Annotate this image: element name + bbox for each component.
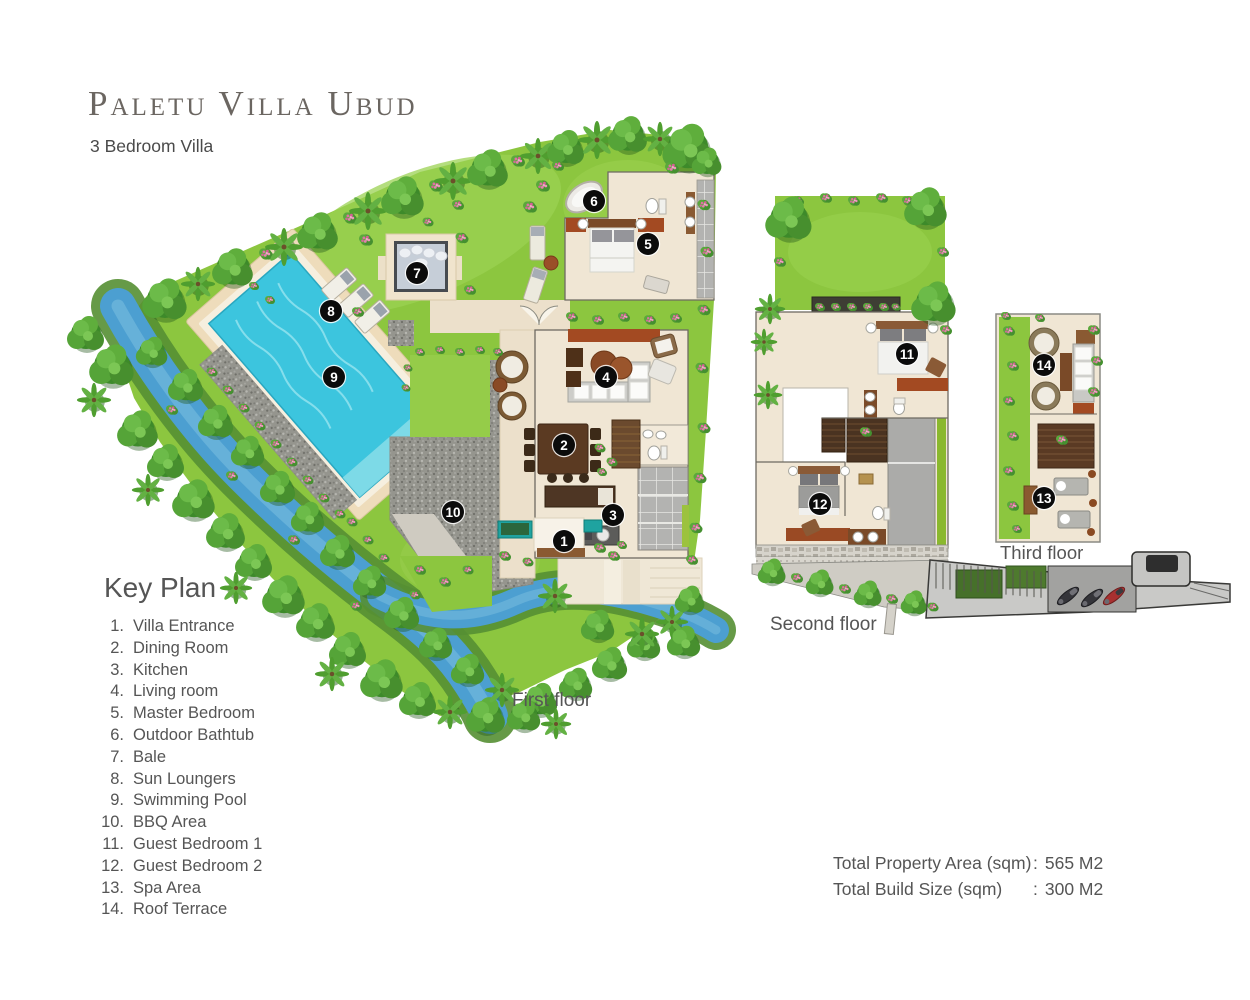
key-plan-item: 12.Guest Bedroom 2 xyxy=(92,857,262,879)
palm-tree-icon xyxy=(181,267,215,301)
key-plan-item-number: 7. xyxy=(92,748,124,767)
key-plan-item-label: Kitchen xyxy=(133,661,188,680)
key-plan-item-label: Roof Terrace xyxy=(133,900,227,919)
key-plan-item-label: Spa Area xyxy=(133,879,201,898)
key-plan-item-label: Master Bedroom xyxy=(133,704,255,723)
palm-tree-icon xyxy=(751,329,778,356)
totals: Total Property Area (sqm):565 M2Total Bu… xyxy=(833,850,1103,902)
key-plan-item: 14.Roof Terrace xyxy=(92,900,262,922)
total-label: Total Property Area (sqm) xyxy=(833,850,1033,876)
palm-tree-icon xyxy=(755,294,785,324)
total-row: Total Property Area (sqm):565 M2 xyxy=(833,850,1103,876)
key-plan-item-number: 5. xyxy=(92,704,124,723)
key-plan-item-label: Swimming Pool xyxy=(133,791,247,810)
key-plan-item-label: Living room xyxy=(133,682,218,701)
palm-tree-icon xyxy=(434,162,472,200)
key-plan-item: 3.Kitchen xyxy=(92,661,262,683)
key-plan-item-number: 1. xyxy=(92,617,124,636)
key-plan-item-number: 12. xyxy=(92,857,124,876)
key-plan-item: 4.Living room xyxy=(92,682,262,704)
key-plan-item: 10.BBQ Area xyxy=(92,813,262,835)
key-plan-item: 2.Dining Room xyxy=(92,639,262,661)
key-plan-item-label: Villa Entrance xyxy=(133,617,235,636)
key-plan-item-number: 13. xyxy=(92,879,124,898)
page-subtitle: 3 Bedroom Villa xyxy=(90,136,213,157)
palm-tree-icon xyxy=(541,709,571,739)
key-plan-item-label: Guest Bedroom 2 xyxy=(133,857,262,876)
second-floor-label: Second floor xyxy=(770,614,877,636)
palm-tree-icon xyxy=(754,381,783,410)
key-plan-item-number: 10. xyxy=(92,813,124,832)
palm-tree-icon xyxy=(77,383,111,417)
key-plan-item: 7.Bale xyxy=(92,748,262,770)
palm-tree-icon xyxy=(132,474,164,506)
stairwell xyxy=(1038,424,1094,468)
key-plan-item-number: 2. xyxy=(92,639,124,658)
key-plan-item-number: 8. xyxy=(92,770,124,789)
third-floor-label: Third floor xyxy=(1000,542,1083,564)
key-plan-heading: Key Plan xyxy=(104,572,216,604)
key-plan-item-number: 14. xyxy=(92,900,124,919)
key-plan-item-label: BBQ Area xyxy=(133,813,206,832)
key-plan-item-number: 6. xyxy=(92,726,124,745)
tree-icon xyxy=(904,187,947,230)
palm-tree-icon xyxy=(265,228,303,266)
total-label: Total Build Size (sqm) xyxy=(833,876,1033,902)
key-plan-item-label: Sun Loungers xyxy=(133,770,236,789)
total-row: Total Build Size (sqm):300 M2 xyxy=(833,876,1103,902)
key-plan-item: 11.Guest Bedroom 1 xyxy=(92,835,262,857)
toilet xyxy=(646,199,658,214)
palm-tree-icon xyxy=(625,617,659,651)
bale-pavilion xyxy=(378,234,462,300)
key-plan-item: 6.Outdoor Bathtub xyxy=(92,726,262,748)
total-sep: : xyxy=(1033,853,1038,873)
key-plan-list: 1.Villa Entrance2.Dining Room3.Kitchen4.… xyxy=(92,617,262,922)
palm-tree-icon xyxy=(433,695,467,729)
page-title: Paletu Villa Ubud xyxy=(88,84,418,124)
key-plan-item-label: Dining Room xyxy=(133,639,228,658)
tree-icon xyxy=(608,116,647,155)
total-value: 300 M2 xyxy=(1045,879,1103,899)
key-plan-item: 13.Spa Area xyxy=(92,879,262,901)
palm-tree-icon xyxy=(538,579,572,613)
palm-tree-icon xyxy=(220,572,252,604)
palm-tree-icon xyxy=(315,657,349,691)
key-plan-item: 5.Master Bedroom xyxy=(92,704,262,726)
key-plan-item: 8.Sun Loungers xyxy=(92,770,262,792)
total-value: 565 M2 xyxy=(1045,853,1103,873)
floor-plan-page: Paletu Villa Ubud 3 Bedroom Villa Key Pl… xyxy=(0,0,1250,1000)
palm-tree-icon xyxy=(349,192,387,230)
key-plan-item-label: Guest Bedroom 1 xyxy=(133,835,262,854)
lawn-square xyxy=(410,355,490,437)
key-plan-item-number: 4. xyxy=(92,682,124,701)
key-plan-item-number: 3. xyxy=(92,661,124,680)
key-plan-item: 1.Villa Entrance xyxy=(92,617,262,639)
total-sep: : xyxy=(1033,879,1038,899)
key-plan-item-label: Outdoor Bathtub xyxy=(133,726,254,745)
key-plan-item-number: 9. xyxy=(92,791,124,810)
key-plan-item-label: Bale xyxy=(133,748,166,767)
car xyxy=(1132,552,1190,586)
key-plan-item-number: 11. xyxy=(92,835,124,854)
key-plan-item: 9.Swimming Pool xyxy=(92,791,262,813)
first-floor-label: First floor xyxy=(512,690,591,712)
